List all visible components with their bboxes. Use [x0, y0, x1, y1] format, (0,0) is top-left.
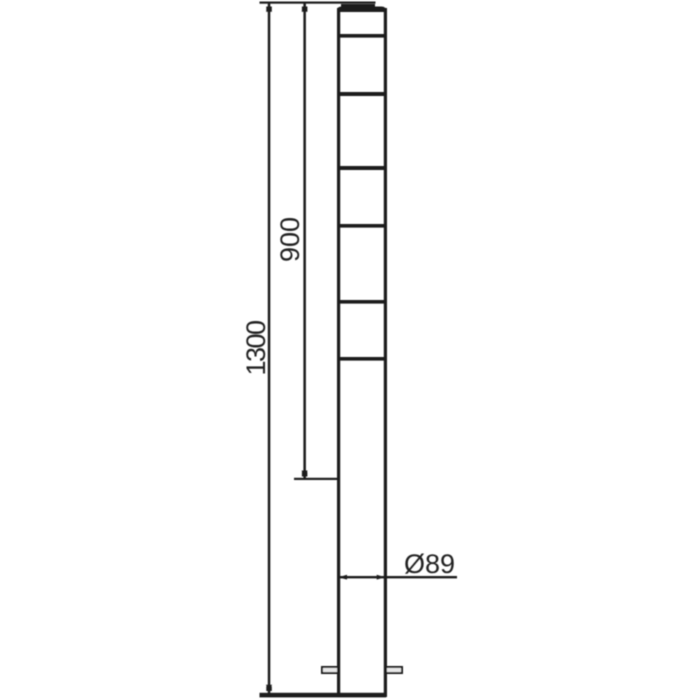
svg-text:900: 900: [275, 217, 305, 262]
svg-text:1300: 1300: [241, 321, 271, 376]
svg-text:Ø89: Ø89: [404, 549, 455, 579]
